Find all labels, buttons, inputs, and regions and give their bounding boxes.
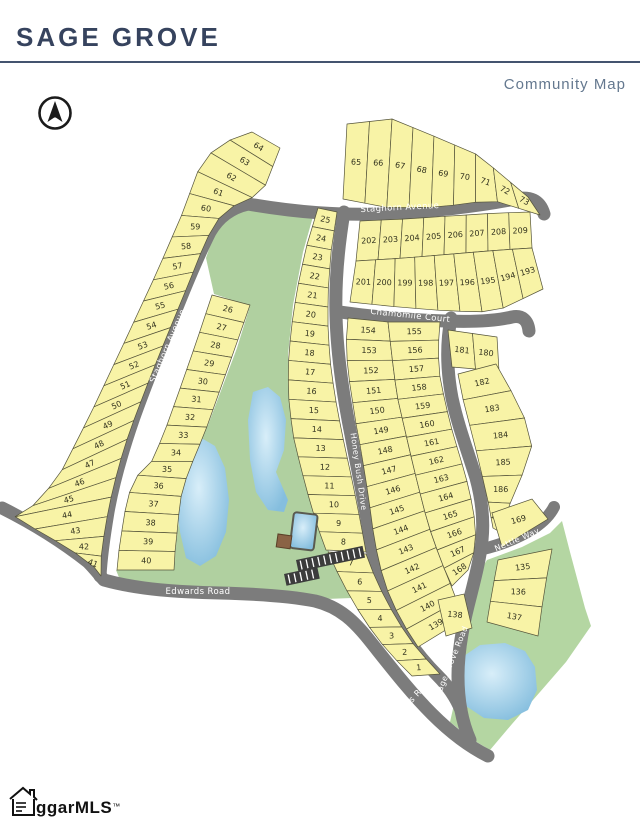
lot-label-21: 21 bbox=[307, 290, 318, 300]
lot-label-185: 185 bbox=[495, 457, 511, 467]
lot-label-65: 65 bbox=[351, 158, 362, 167]
cabana bbox=[276, 534, 292, 549]
lot-label-11: 11 bbox=[324, 481, 334, 490]
lot-label-15: 15 bbox=[309, 406, 320, 416]
lot-label-34: 34 bbox=[171, 448, 181, 457]
lot-label-203: 203 bbox=[383, 235, 399, 245]
lot-label-208: 208 bbox=[491, 227, 507, 237]
lot-label-60: 60 bbox=[200, 203, 211, 213]
lot-label-6: 6 bbox=[357, 577, 362, 586]
lot-label-198: 198 bbox=[418, 279, 433, 288]
lot-label-158: 158 bbox=[411, 382, 427, 392]
lot-label-181: 181 bbox=[454, 345, 470, 356]
lot-label-68: 68 bbox=[416, 165, 428, 176]
lot-label-200: 200 bbox=[376, 278, 392, 287]
lot-label-58: 58 bbox=[181, 241, 192, 251]
lot-label-13: 13 bbox=[315, 444, 325, 453]
lot-label-152: 152 bbox=[363, 366, 379, 375]
lot-label-70: 70 bbox=[459, 172, 470, 182]
lot-label-16: 16 bbox=[306, 387, 317, 397]
lot-label-197: 197 bbox=[439, 278, 454, 287]
lot-label-39: 39 bbox=[143, 537, 153, 546]
lot-label-9: 9 bbox=[336, 519, 341, 528]
lot-label-204: 204 bbox=[404, 233, 420, 243]
lot-label-42: 42 bbox=[79, 542, 89, 551]
lot-label-206: 206 bbox=[447, 230, 463, 240]
lot-label-57: 57 bbox=[172, 261, 183, 272]
lot-label-23: 23 bbox=[312, 252, 324, 263]
lot-label-207: 207 bbox=[469, 228, 485, 238]
lot-label-30: 30 bbox=[197, 376, 208, 386]
lot-label-4: 4 bbox=[377, 614, 382, 623]
lot-strip-t1: 656667686970717273 bbox=[343, 119, 540, 215]
lot-label-35: 35 bbox=[162, 465, 173, 474]
lot-label-156: 156 bbox=[407, 346, 423, 356]
community-map-page: SAGE GROVE Community Map 656667686970717… bbox=[0, 0, 640, 828]
lot-label-205: 205 bbox=[426, 232, 442, 242]
road-label-edwards-left: Edwards Road bbox=[166, 587, 231, 597]
plat-map: 6566676869707172732022032042052062072082… bbox=[0, 0, 640, 828]
lot-label-136: 136 bbox=[511, 587, 527, 596]
lot-label-199: 199 bbox=[397, 278, 412, 287]
lot-label-66: 66 bbox=[373, 158, 384, 167]
lot-label-202: 202 bbox=[361, 236, 377, 246]
lot-label-33: 33 bbox=[178, 431, 189, 440]
lot-label-184: 184 bbox=[492, 430, 508, 441]
brand-text: ggarMLS bbox=[36, 798, 112, 818]
lot-label-36: 36 bbox=[153, 481, 164, 491]
lot-label-151: 151 bbox=[366, 386, 382, 396]
lot-label-154: 154 bbox=[360, 325, 376, 335]
lot-label-29: 29 bbox=[203, 358, 214, 368]
lot-label-40: 40 bbox=[141, 556, 151, 565]
lot-label-24: 24 bbox=[315, 233, 327, 244]
lot-label-157: 157 bbox=[409, 364, 425, 374]
lot-label-22: 22 bbox=[309, 271, 320, 282]
lot-label-69: 69 bbox=[438, 168, 449, 178]
lot-label-12: 12 bbox=[320, 463, 330, 472]
lot-label-153: 153 bbox=[361, 346, 376, 355]
lot-label-1: 1 bbox=[416, 663, 422, 672]
lot-label-155: 155 bbox=[407, 327, 422, 336]
lot-label-186: 186 bbox=[493, 485, 508, 494]
lot-label-44: 44 bbox=[61, 510, 73, 521]
lot-label-3: 3 bbox=[389, 631, 394, 640]
lot-strip-rp1: 181180 bbox=[448, 330, 499, 371]
lot-label-196: 196 bbox=[460, 278, 476, 287]
lot-label-14: 14 bbox=[312, 425, 323, 434]
lot-label-5: 5 bbox=[367, 596, 372, 605]
lot-label-59: 59 bbox=[190, 222, 200, 231]
lot-label-8: 8 bbox=[341, 537, 346, 546]
lot-label-209: 209 bbox=[512, 226, 528, 236]
lot-label-28: 28 bbox=[210, 340, 222, 351]
lot-label-31: 31 bbox=[191, 395, 202, 405]
lot-label-201: 201 bbox=[356, 277, 372, 286]
lot-label-19: 19 bbox=[304, 329, 315, 339]
lot-label-10: 10 bbox=[329, 500, 339, 509]
lot-label-17: 17 bbox=[305, 367, 316, 377]
mls-logo: ggarMLS ™ bbox=[6, 784, 120, 818]
lot-label-180: 180 bbox=[478, 348, 494, 359]
lot-label-138: 138 bbox=[447, 610, 463, 621]
lot-label-37: 37 bbox=[148, 499, 159, 509]
lot-label-150: 150 bbox=[369, 405, 385, 416]
pool bbox=[290, 512, 318, 551]
trademark: ™ bbox=[112, 802, 120, 811]
lot-label-20: 20 bbox=[305, 309, 316, 319]
lot-label-32: 32 bbox=[185, 413, 196, 423]
lot-label-38: 38 bbox=[145, 518, 156, 527]
lot-label-18: 18 bbox=[304, 348, 315, 358]
lot-label-43: 43 bbox=[70, 526, 81, 536]
lot-label-2: 2 bbox=[402, 648, 407, 657]
